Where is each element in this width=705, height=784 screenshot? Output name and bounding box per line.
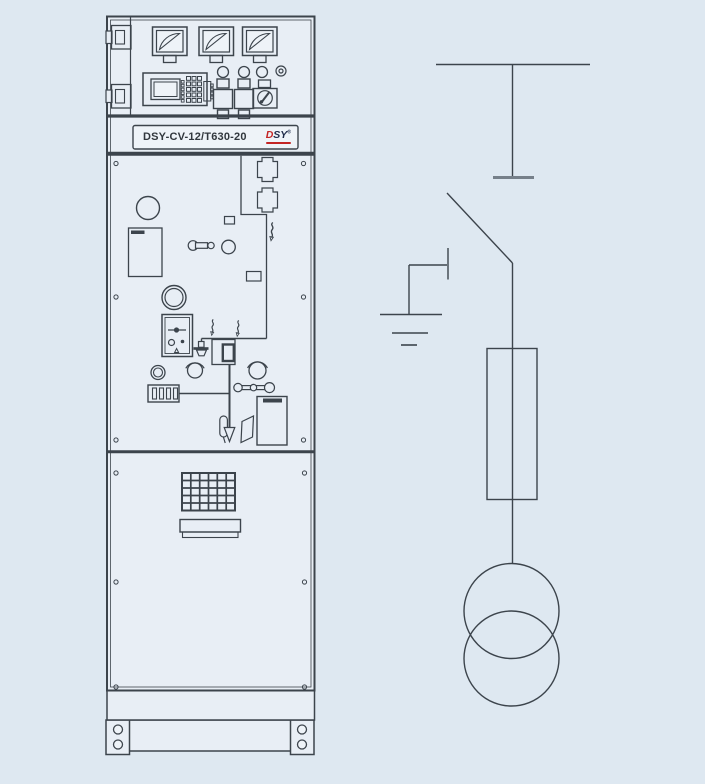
bolt-hole-icon	[298, 740, 307, 749]
transformer-icon	[464, 564, 559, 707]
nameplate-overlay: DSY-CV-12/T630-20 DSY®	[133, 125, 298, 149]
cabinet-plinth	[107, 691, 315, 721]
earthing-switch-icon	[380, 248, 448, 345]
bolt-hole-icon	[298, 725, 307, 734]
bolt-hole-icon	[114, 725, 123, 734]
cabinet-base	[106, 720, 314, 755]
cabinet-body	[107, 17, 315, 691]
brand-logo: DSY®	[266, 130, 291, 144]
drawing-svg	[0, 0, 705, 784]
model-label: DSY-CV-12/T630-20	[143, 131, 247, 143]
earth-icon	[380, 315, 442, 346]
bolt-hole-icon	[114, 740, 123, 749]
brand-logo-text: DSY®	[266, 130, 291, 141]
technical-drawing-page: DSY-CV-12/T630-20 DSY®	[0, 0, 705, 784]
logo-subtext-bar	[266, 142, 291, 145]
linkage-rod-icon	[234, 383, 275, 393]
disconnector-blade-icon	[447, 193, 513, 263]
single-line-diagram	[380, 65, 590, 707]
junction-box-icon	[212, 340, 235, 365]
base-band	[111, 720, 310, 751]
vent-grille-icon	[182, 473, 235, 511]
